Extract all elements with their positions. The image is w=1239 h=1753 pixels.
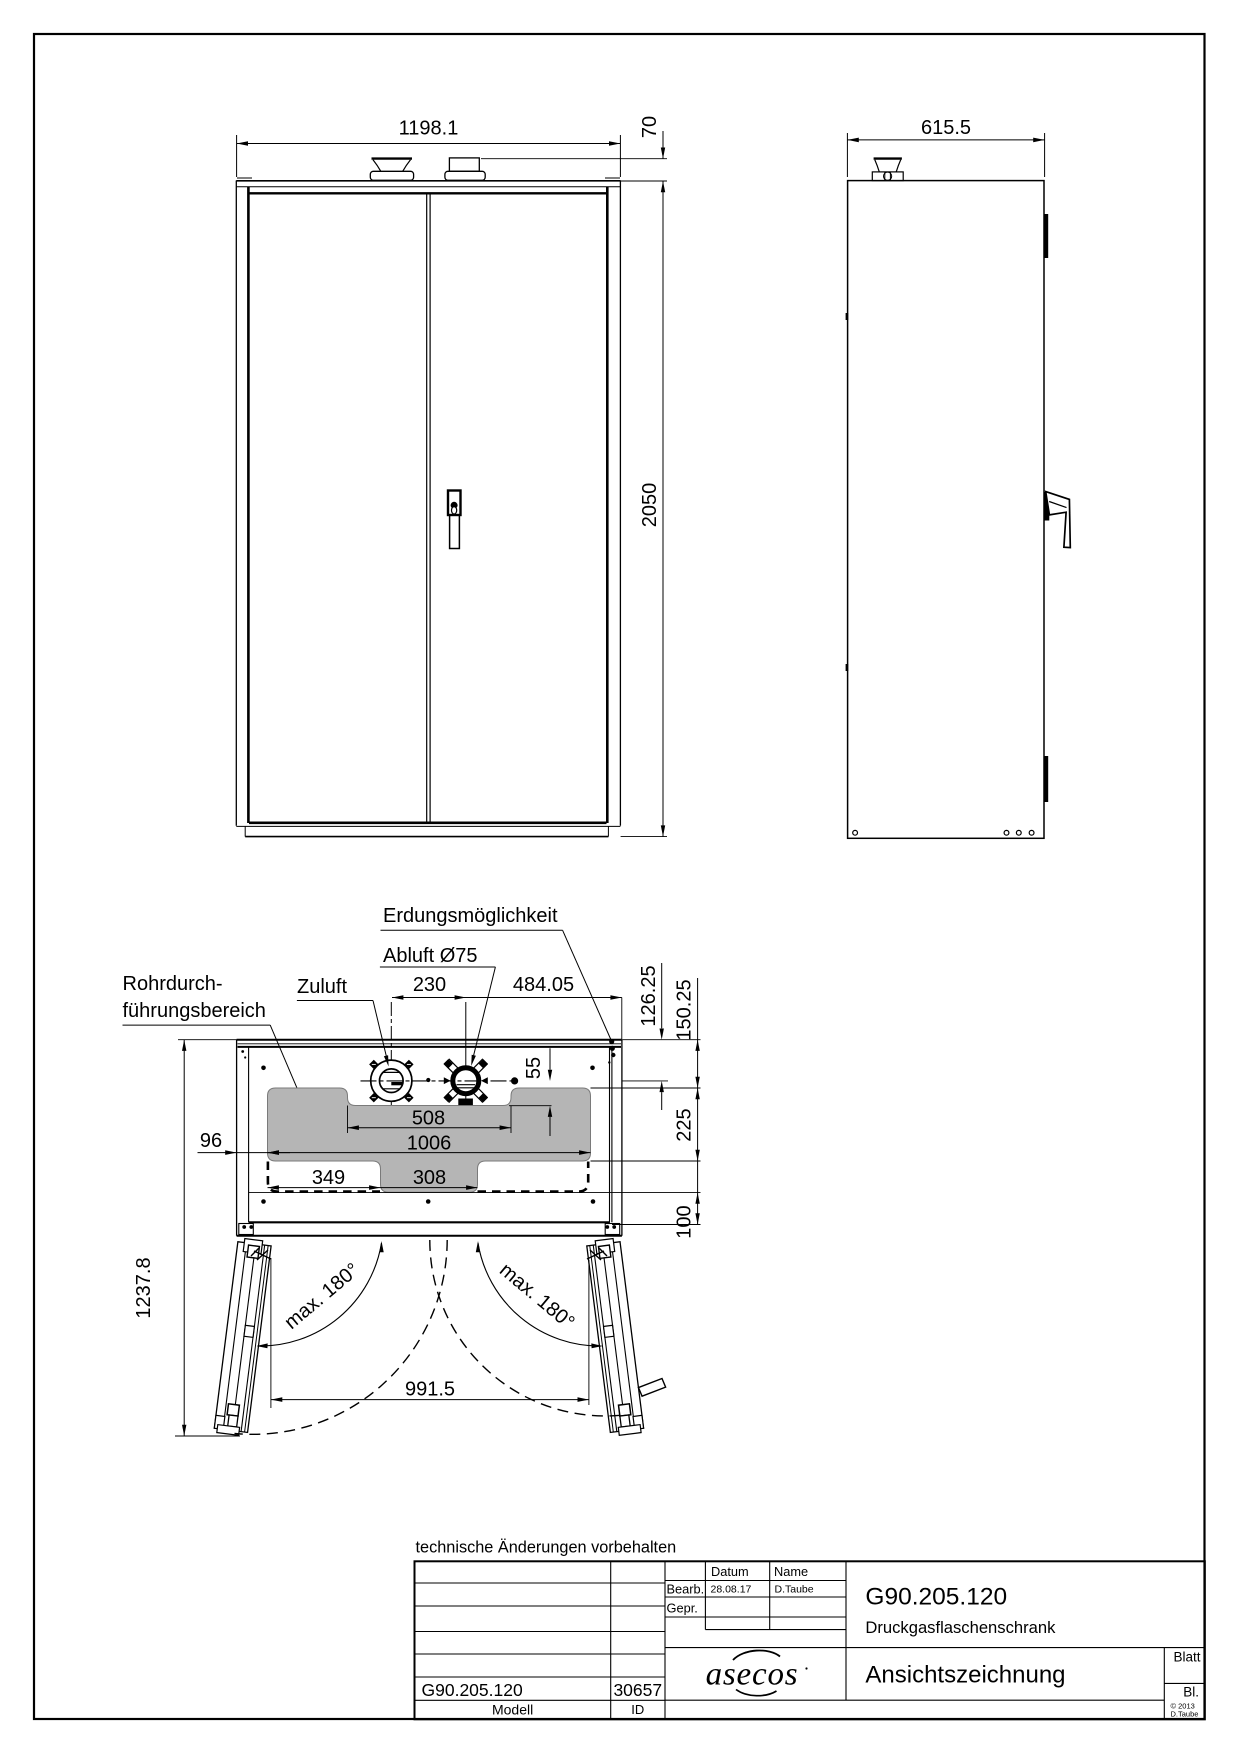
svg-text:70: 70: [639, 116, 661, 138]
svg-text:1006: 1006: [407, 1133, 452, 1155]
svg-text:Abluft Ø75: Abluft Ø75: [383, 945, 478, 967]
svg-text:Datum: Datum: [711, 1564, 749, 1579]
svg-text:1198.1: 1198.1: [399, 118, 459, 140]
svg-text:Gepr.: Gepr.: [667, 1601, 698, 1616]
svg-text:2050: 2050: [639, 483, 661, 528]
svg-text:G90.205.120: G90.205.120: [865, 1584, 1007, 1611]
svg-text:Bearb.: Bearb.: [667, 1582, 705, 1597]
svg-text:100: 100: [674, 1205, 696, 1238]
svg-text:führungsbereich: führungsbereich: [123, 1000, 266, 1022]
svg-text:484.05: 484.05: [513, 974, 574, 996]
svg-text:126.25: 126.25: [638, 965, 660, 1026]
svg-text:Ansichtszeichnung: Ansichtszeichnung: [865, 1662, 1065, 1689]
svg-text:G90.205.120: G90.205.120: [422, 1680, 523, 1700]
svg-text:Name: Name: [774, 1564, 808, 1579]
svg-text:Bl.: Bl.: [1183, 1685, 1199, 1700]
svg-text:28.08.17: 28.08.17: [711, 1584, 752, 1596]
svg-text:615.5: 615.5: [921, 117, 971, 139]
svg-text:Modell: Modell: [492, 1702, 533, 1718]
svg-text:Erdungsmöglichkeit: Erdungsmöglichkeit: [383, 905, 558, 927]
svg-text:ID: ID: [631, 1702, 644, 1717]
svg-text:150.25: 150.25: [674, 979, 696, 1040]
svg-text:55: 55: [523, 1057, 545, 1079]
svg-text:230: 230: [413, 974, 446, 996]
svg-text:asecos: asecos: [706, 1657, 799, 1693]
svg-text:D.Taube: D.Taube: [1171, 1710, 1199, 1719]
svg-text:Zuluft: Zuluft: [297, 976, 347, 998]
svg-text:225: 225: [674, 1108, 696, 1141]
svg-text:Druckgasflaschenschrank: Druckgasflaschenschrank: [865, 1618, 1056, 1637]
svg-text:349: 349: [312, 1167, 345, 1189]
svg-text:308: 308: [413, 1167, 446, 1189]
svg-text:96: 96: [200, 1130, 222, 1152]
svg-text:30657: 30657: [613, 1680, 662, 1700]
svg-text:1237.8: 1237.8: [133, 1257, 155, 1318]
svg-text:technische Änderungen vorbehal: technische Änderungen vorbehalten: [416, 1539, 677, 1557]
svg-text:Blatt: Blatt: [1174, 1650, 1201, 1665]
svg-text:D.Taube: D.Taube: [775, 1584, 814, 1596]
svg-text:991.5: 991.5: [405, 1379, 455, 1401]
svg-text:508: 508: [412, 1108, 445, 1130]
svg-text:Rohrdurch-: Rohrdurch-: [123, 973, 223, 995]
